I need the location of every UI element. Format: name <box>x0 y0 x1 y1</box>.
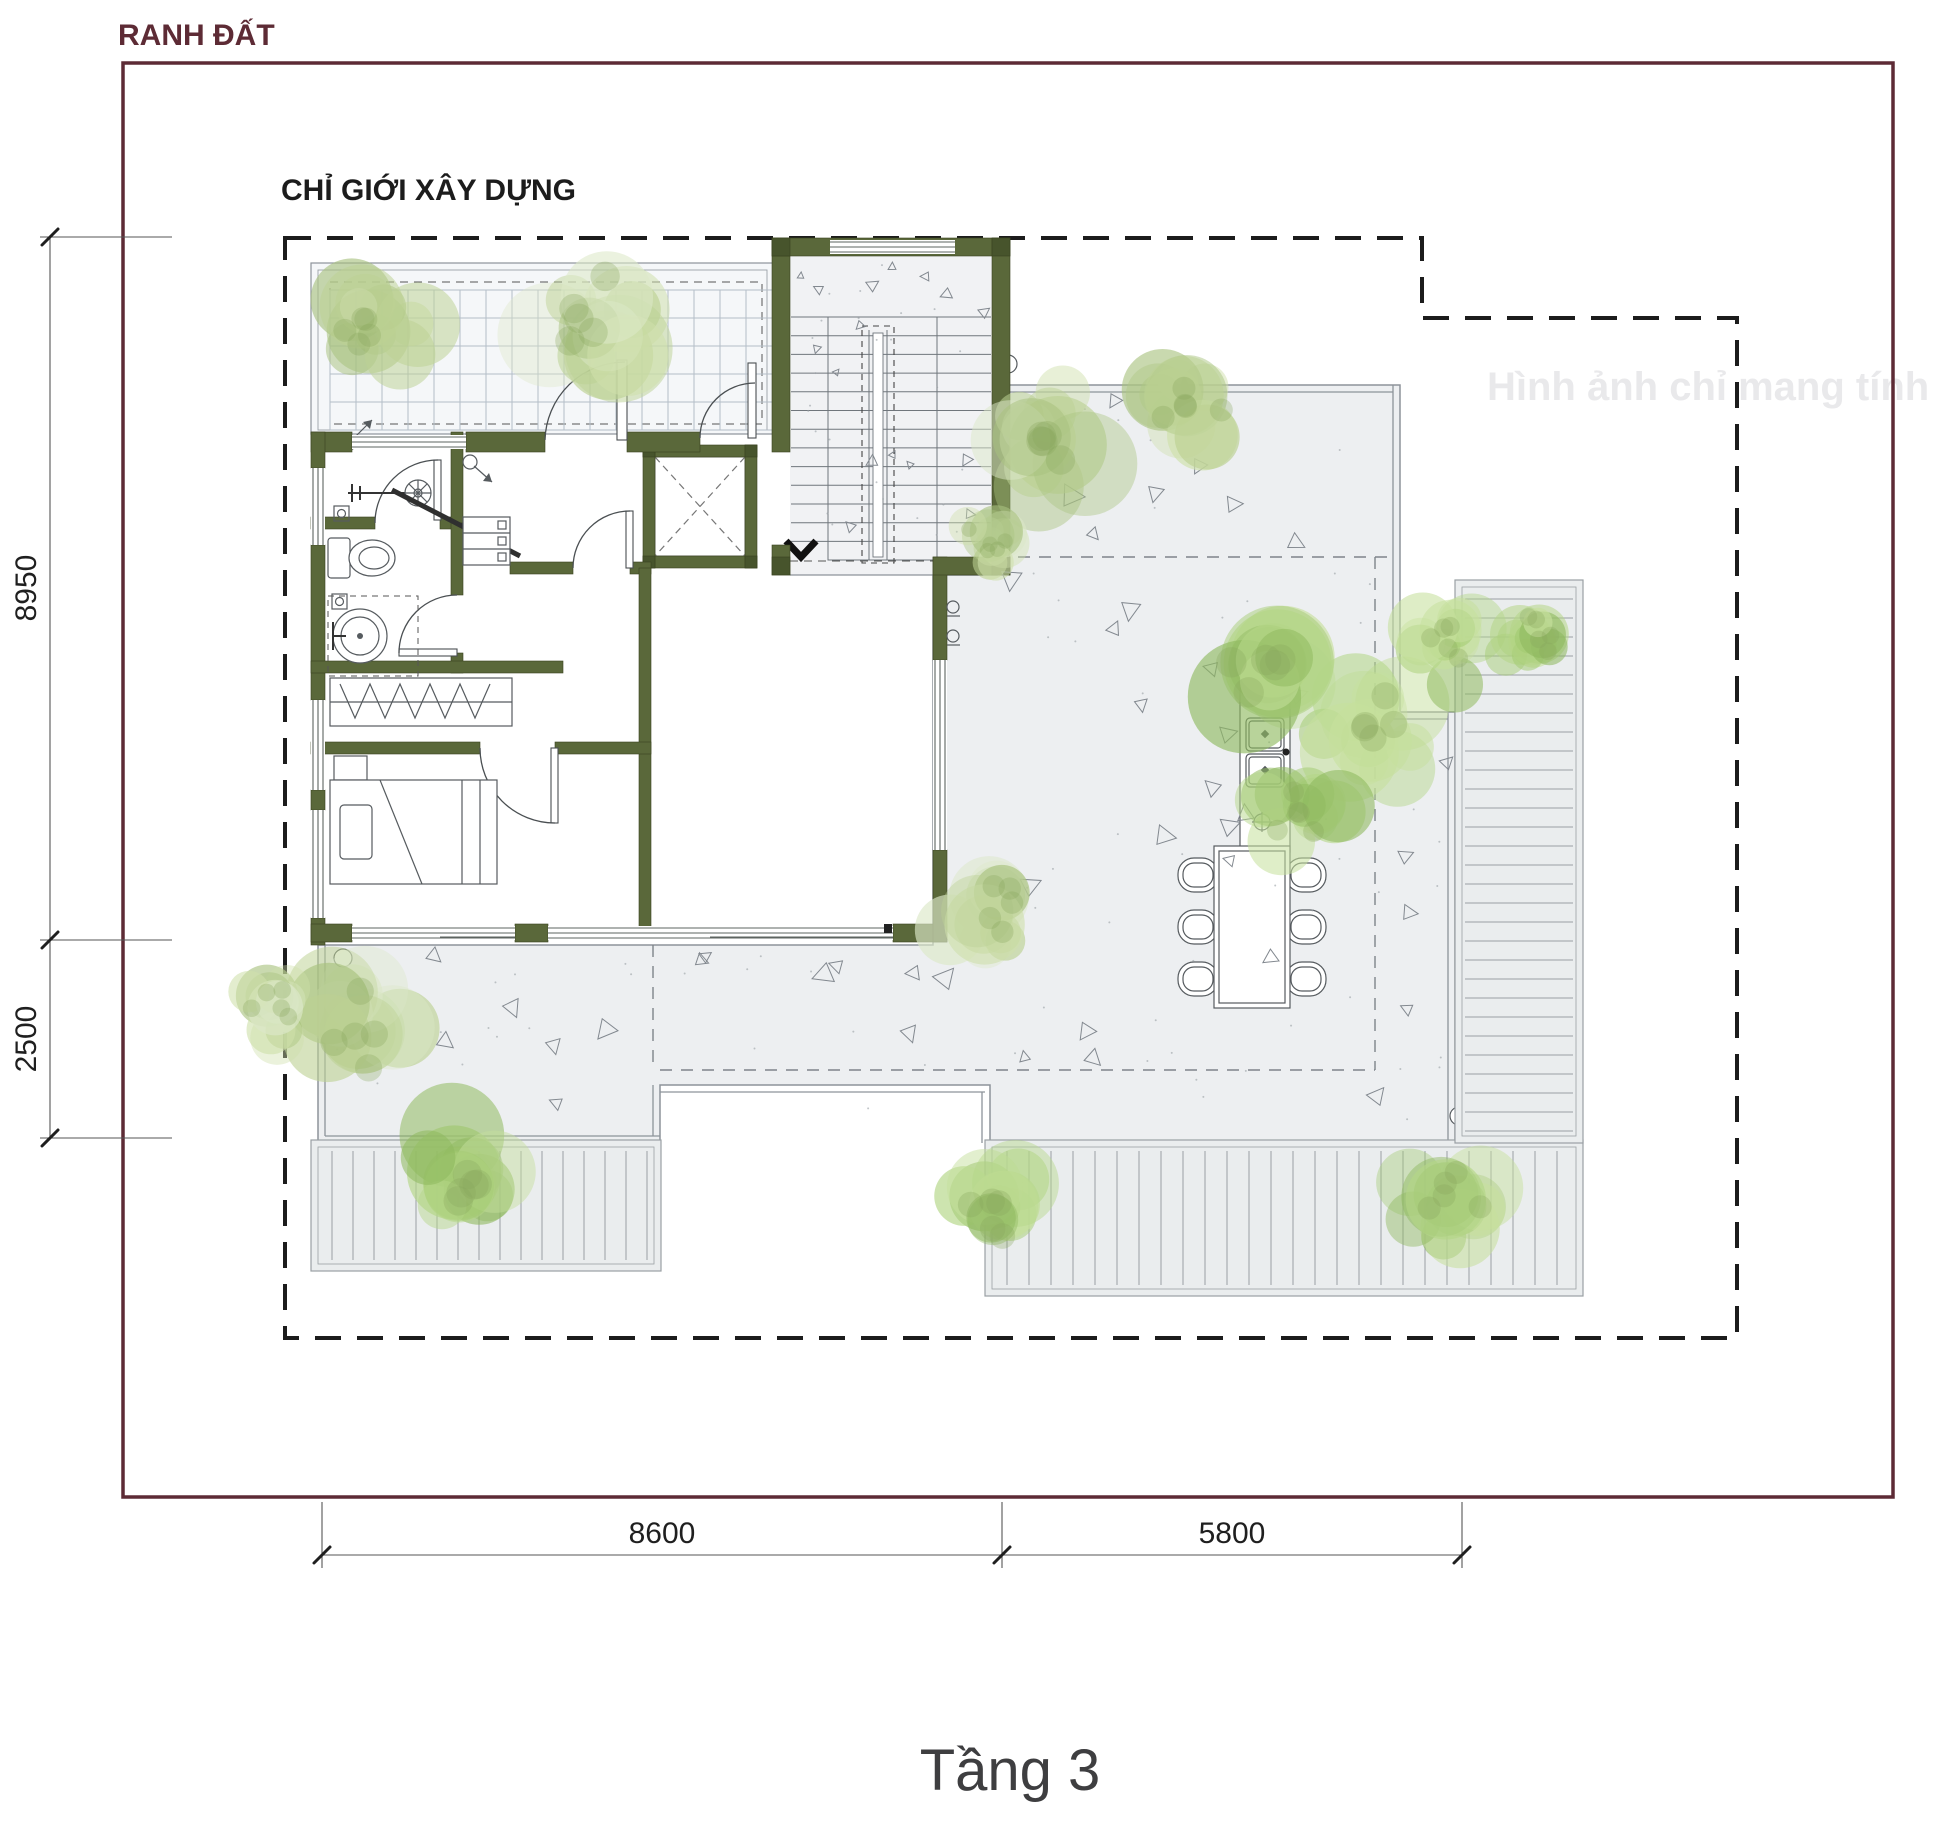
door-handle-icon <box>884 924 892 933</box>
floor-plan-sheet: Hình ảnh chỉ mang tính ch RANH ĐẤT CHỈ G… <box>0 0 1941 1845</box>
entry-arrow-icon <box>463 455 492 482</box>
hall-door <box>573 511 633 568</box>
closet <box>330 678 512 726</box>
tree <box>228 965 310 1065</box>
bedroom <box>330 756 497 884</box>
bed <box>330 780 497 884</box>
dim-value-5800: 5800 <box>1199 1517 1266 1550</box>
toilet <box>328 538 395 578</box>
dimension-bottom: 8600 5800 <box>314 1502 1470 1568</box>
dim-value-2500: 2500 <box>10 1006 43 1073</box>
setback-label: CHỈ GIỚI XÂY DỰNG <box>281 173 576 207</box>
dim-value-8600: 8600 <box>629 1517 696 1550</box>
watermark: Hình ảnh chỉ mang tính ch <box>1487 365 1941 409</box>
plan-drawing: Hình ảnh chỉ mang tính ch RANH ĐẤT CHỈ G… <box>0 0 1941 1845</box>
bathroom <box>328 455 520 676</box>
bathroom-door <box>399 595 457 656</box>
plan-title: Tầng 3 <box>920 1738 1101 1803</box>
dining-area <box>1178 846 1326 1008</box>
dim-value-8950: 8950 <box>10 555 43 622</box>
tree <box>915 856 1030 968</box>
hall-cabinet <box>463 517 510 565</box>
nightstand <box>334 756 367 780</box>
property-boundary-label: RANH ĐẤT <box>118 18 275 52</box>
elevator <box>643 445 757 568</box>
dimension-left: 8950 2500 <box>10 229 172 1146</box>
